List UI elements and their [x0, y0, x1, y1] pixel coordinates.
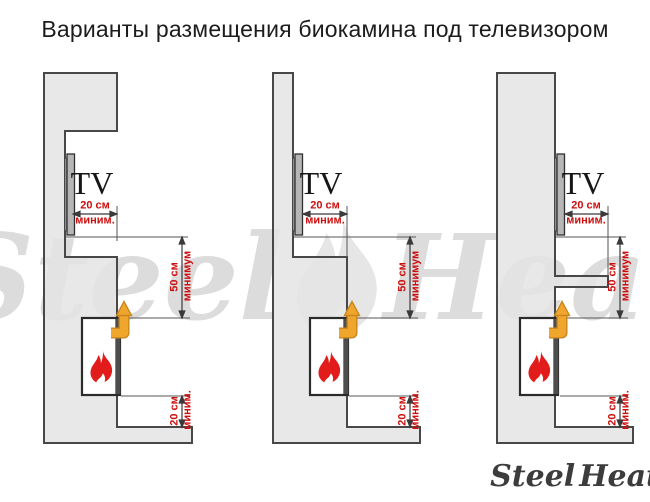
- dimension-lines: [565, 211, 623, 427]
- dim-clearance-value: 50 см: [170, 262, 181, 292]
- diagram-scene: [0, 0, 650, 502]
- dim-tv-depth-value: 20 см: [571, 201, 601, 212]
- dim-floor-gap-value: 20 см: [608, 396, 619, 426]
- dim-clearance-value: 50 см: [608, 262, 619, 292]
- dim-tv-depth-note: миним.: [566, 216, 606, 227]
- tv-label: TV: [71, 167, 114, 199]
- dim-floor-gap-note: миним.: [411, 390, 422, 430]
- brand-logo: Steel Heat: [500, 452, 650, 500]
- tv-label: TV: [300, 167, 343, 199]
- dim-floor-gap-note: миним.: [621, 390, 632, 430]
- dim-floor-gap-value: 20 см: [170, 396, 181, 426]
- dim-floor-gap-note: миним.: [183, 390, 194, 430]
- dim-clearance-note: минимум: [621, 251, 632, 301]
- extension-lines: [556, 206, 628, 396]
- diagram-variant-recessed-niche: [44, 73, 192, 443]
- dim-tv-depth-value: 20 см: [310, 201, 340, 212]
- dim-clearance-note: минимум: [411, 251, 422, 301]
- dim-tv-depth-note: миним.: [305, 216, 345, 227]
- dim-clearance-value: 50 см: [398, 262, 409, 292]
- logo-word-heat: Heat: [579, 459, 650, 494]
- diagram-variant-shelf: [497, 73, 633, 443]
- dim-tv-depth-value: 20 см: [80, 201, 110, 212]
- dim-floor-gap-value: 20 см: [398, 396, 409, 426]
- infographic-canvas: Варианты размещения биокамина под телеви…: [0, 0, 650, 502]
- dim-clearance-note: минимум: [183, 251, 194, 301]
- wall-cross-section: [497, 73, 633, 443]
- dim-tv-depth-note: миним.: [75, 216, 115, 227]
- diagram-variant-plinth: [273, 73, 420, 443]
- tv-label: TV: [562, 167, 605, 199]
- page-title: Варианты размещения биокамина под телеви…: [0, 16, 650, 43]
- logo-word-steel: Steel: [490, 459, 575, 494]
